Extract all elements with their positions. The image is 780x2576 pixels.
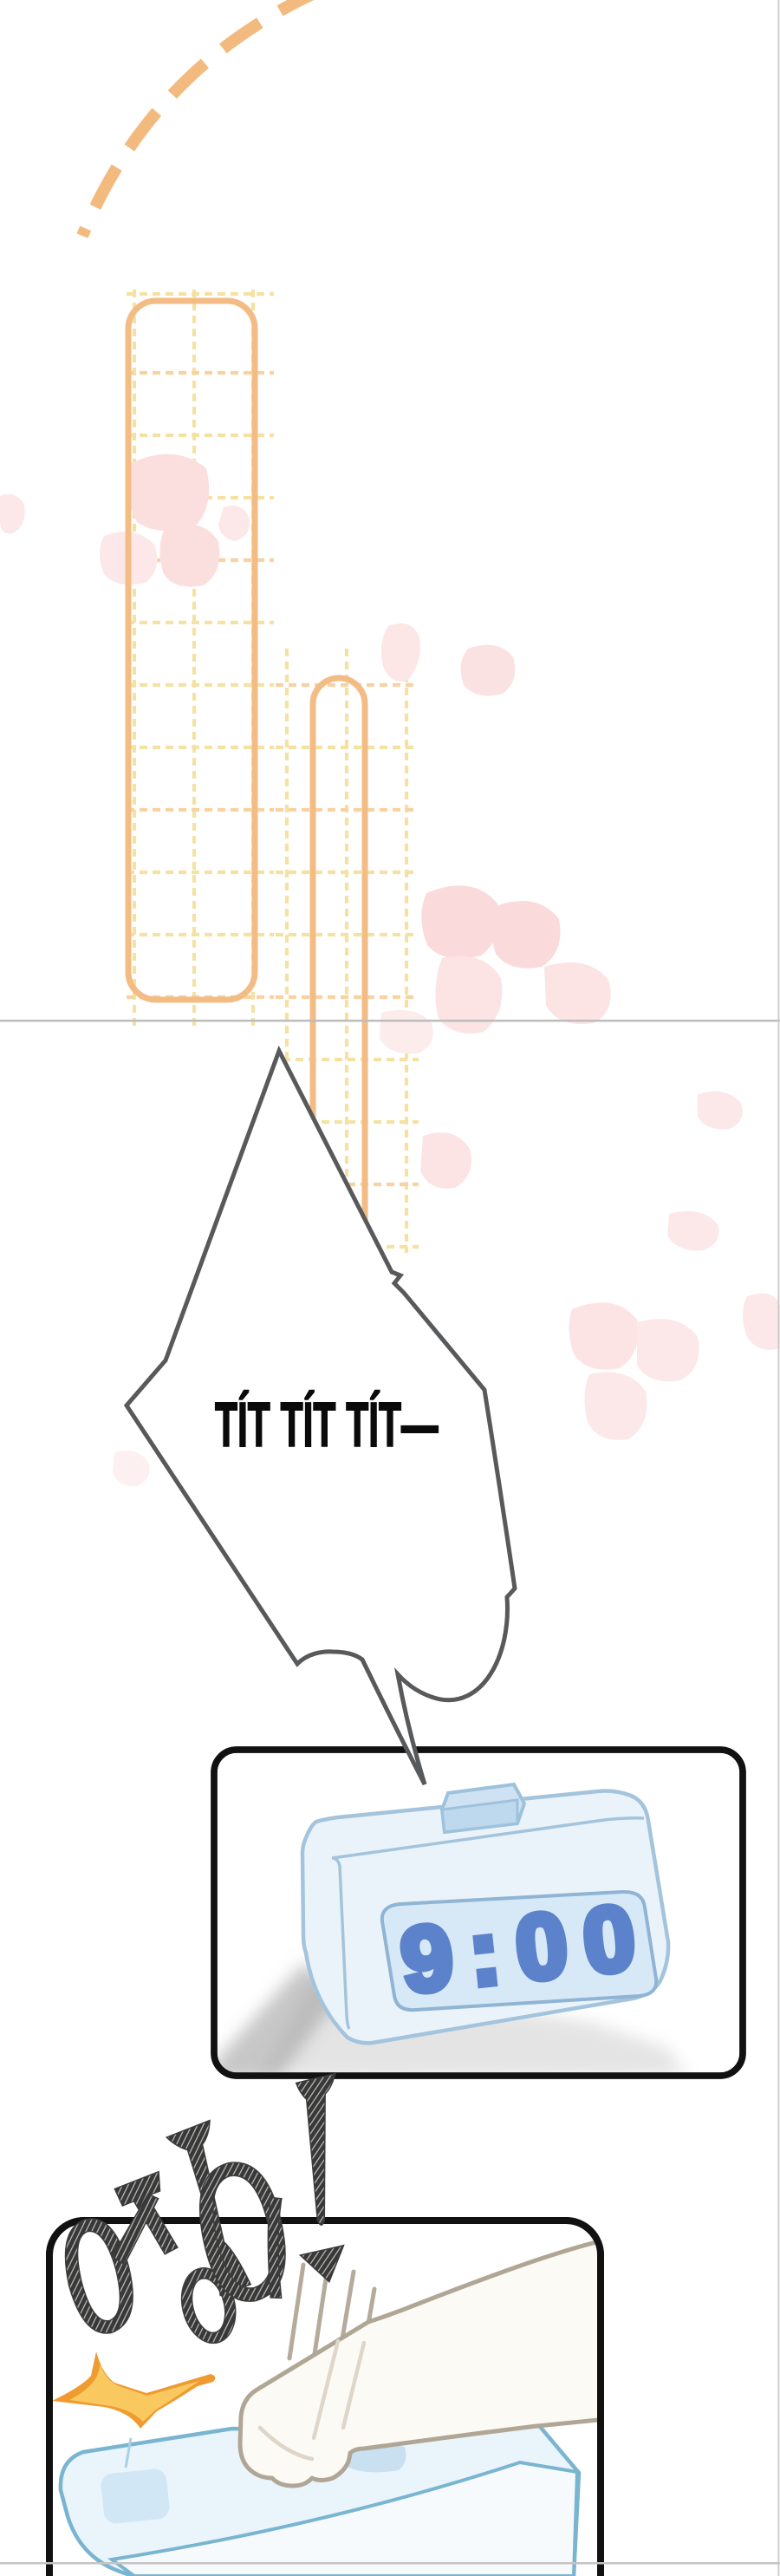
svg-text:TÍT TÍT TÍT—: TÍT TÍT TÍT—	[215, 1390, 439, 1459]
